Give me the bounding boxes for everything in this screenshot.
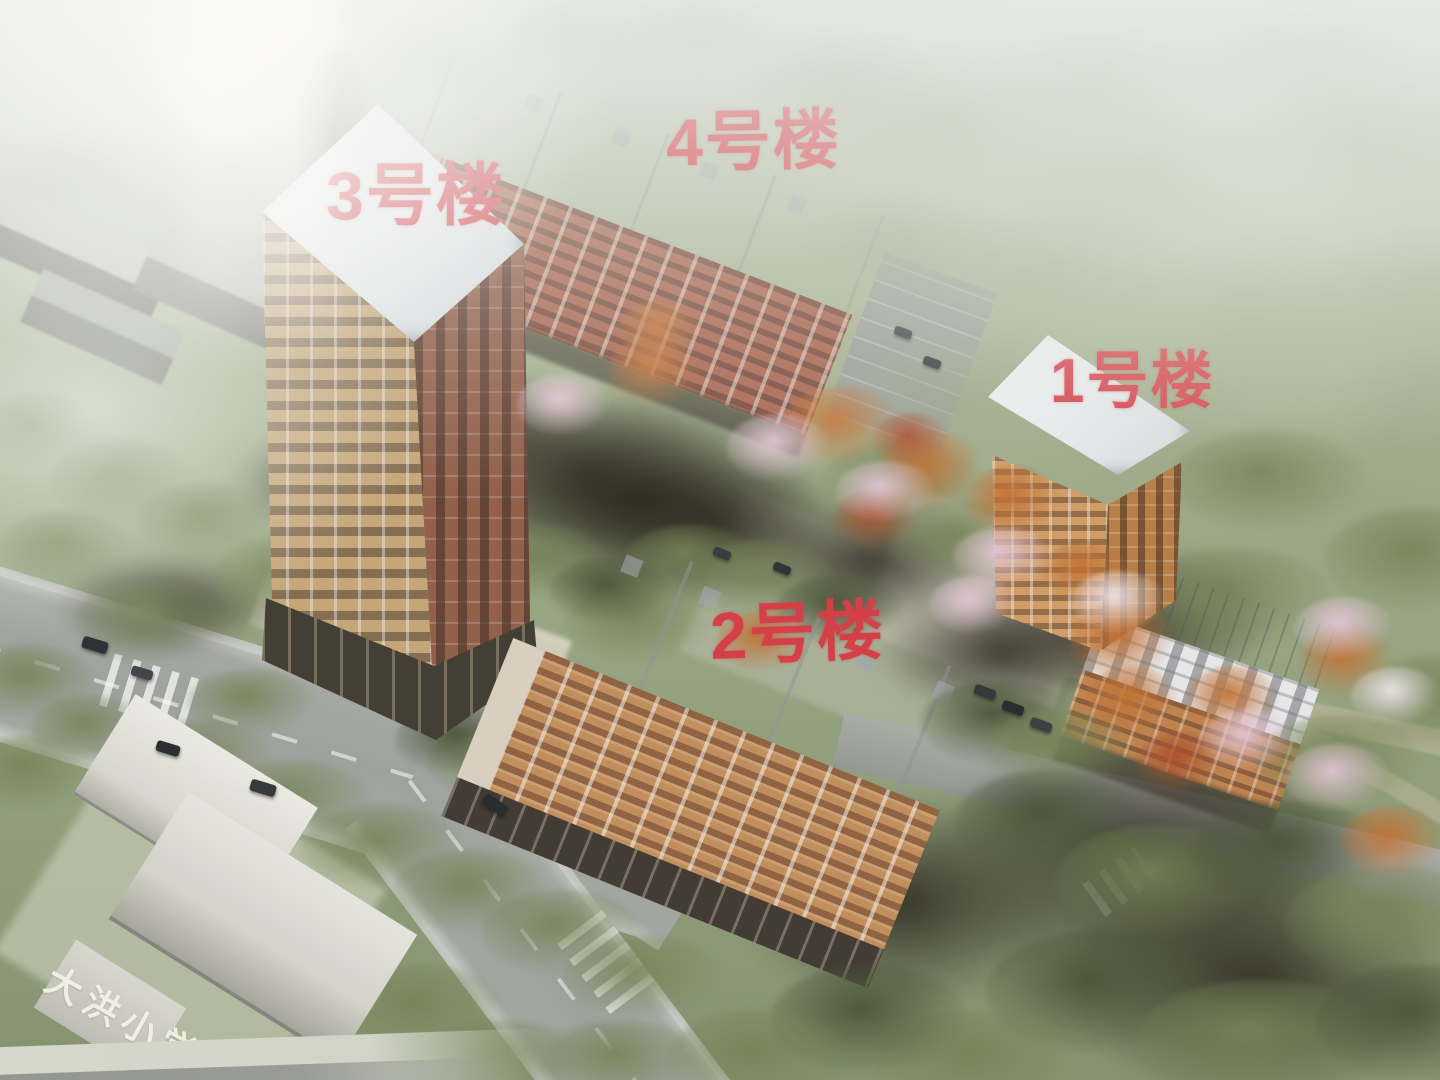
- tree: [1285, 744, 1390, 812]
- tree: [516, 374, 611, 436]
- tree: [726, 414, 831, 482]
- tree: [1340, 806, 1440, 878]
- tree: [562, 935, 722, 1020]
- tree: [873, 413, 948, 468]
- tree: [618, 300, 703, 360]
- tree: [835, 461, 935, 523]
- tree: [929, 576, 1017, 634]
- tree: [1294, 597, 1394, 659]
- label-building-2: 2号楼: [708, 577, 886, 679]
- tree: [187, 670, 317, 735]
- label-building-1: 1号楼: [1050, 330, 1214, 420]
- tree: [1200, 709, 1295, 771]
- tree: [1071, 571, 1166, 633]
- tree: [0, 125, 165, 215]
- tree: [1351, 667, 1440, 725]
- tree: [45, 20, 235, 120]
- tree: [1085, 666, 1180, 738]
- aerial-rendering-photo: 3号楼 4号楼 1号楼 2号楼 大洪小学: [0, 0, 1440, 1080]
- tree: [1170, 430, 1370, 530]
- label-building-3: 3号楼: [326, 140, 506, 239]
- tree: [0, 511, 130, 586]
- label-building-4: 4号楼: [665, 86, 841, 185]
